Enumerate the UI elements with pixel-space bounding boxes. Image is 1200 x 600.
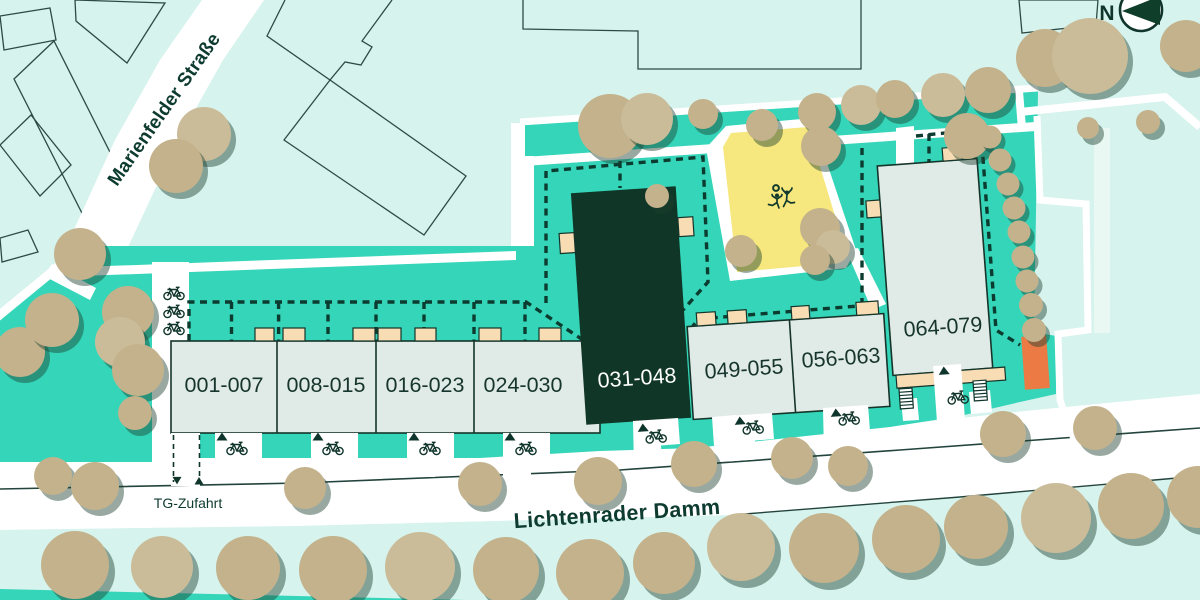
svg-text:TG-Zufahrt: TG-Zufahrt	[154, 495, 223, 511]
svg-text:016-023: 016-023	[386, 373, 465, 397]
svg-text:N: N	[1099, 2, 1114, 25]
svg-text:001-007: 001-007	[185, 373, 264, 397]
svg-text:008-015: 008-015	[287, 373, 366, 397]
svg-text:024-030: 024-030	[484, 373, 563, 397]
